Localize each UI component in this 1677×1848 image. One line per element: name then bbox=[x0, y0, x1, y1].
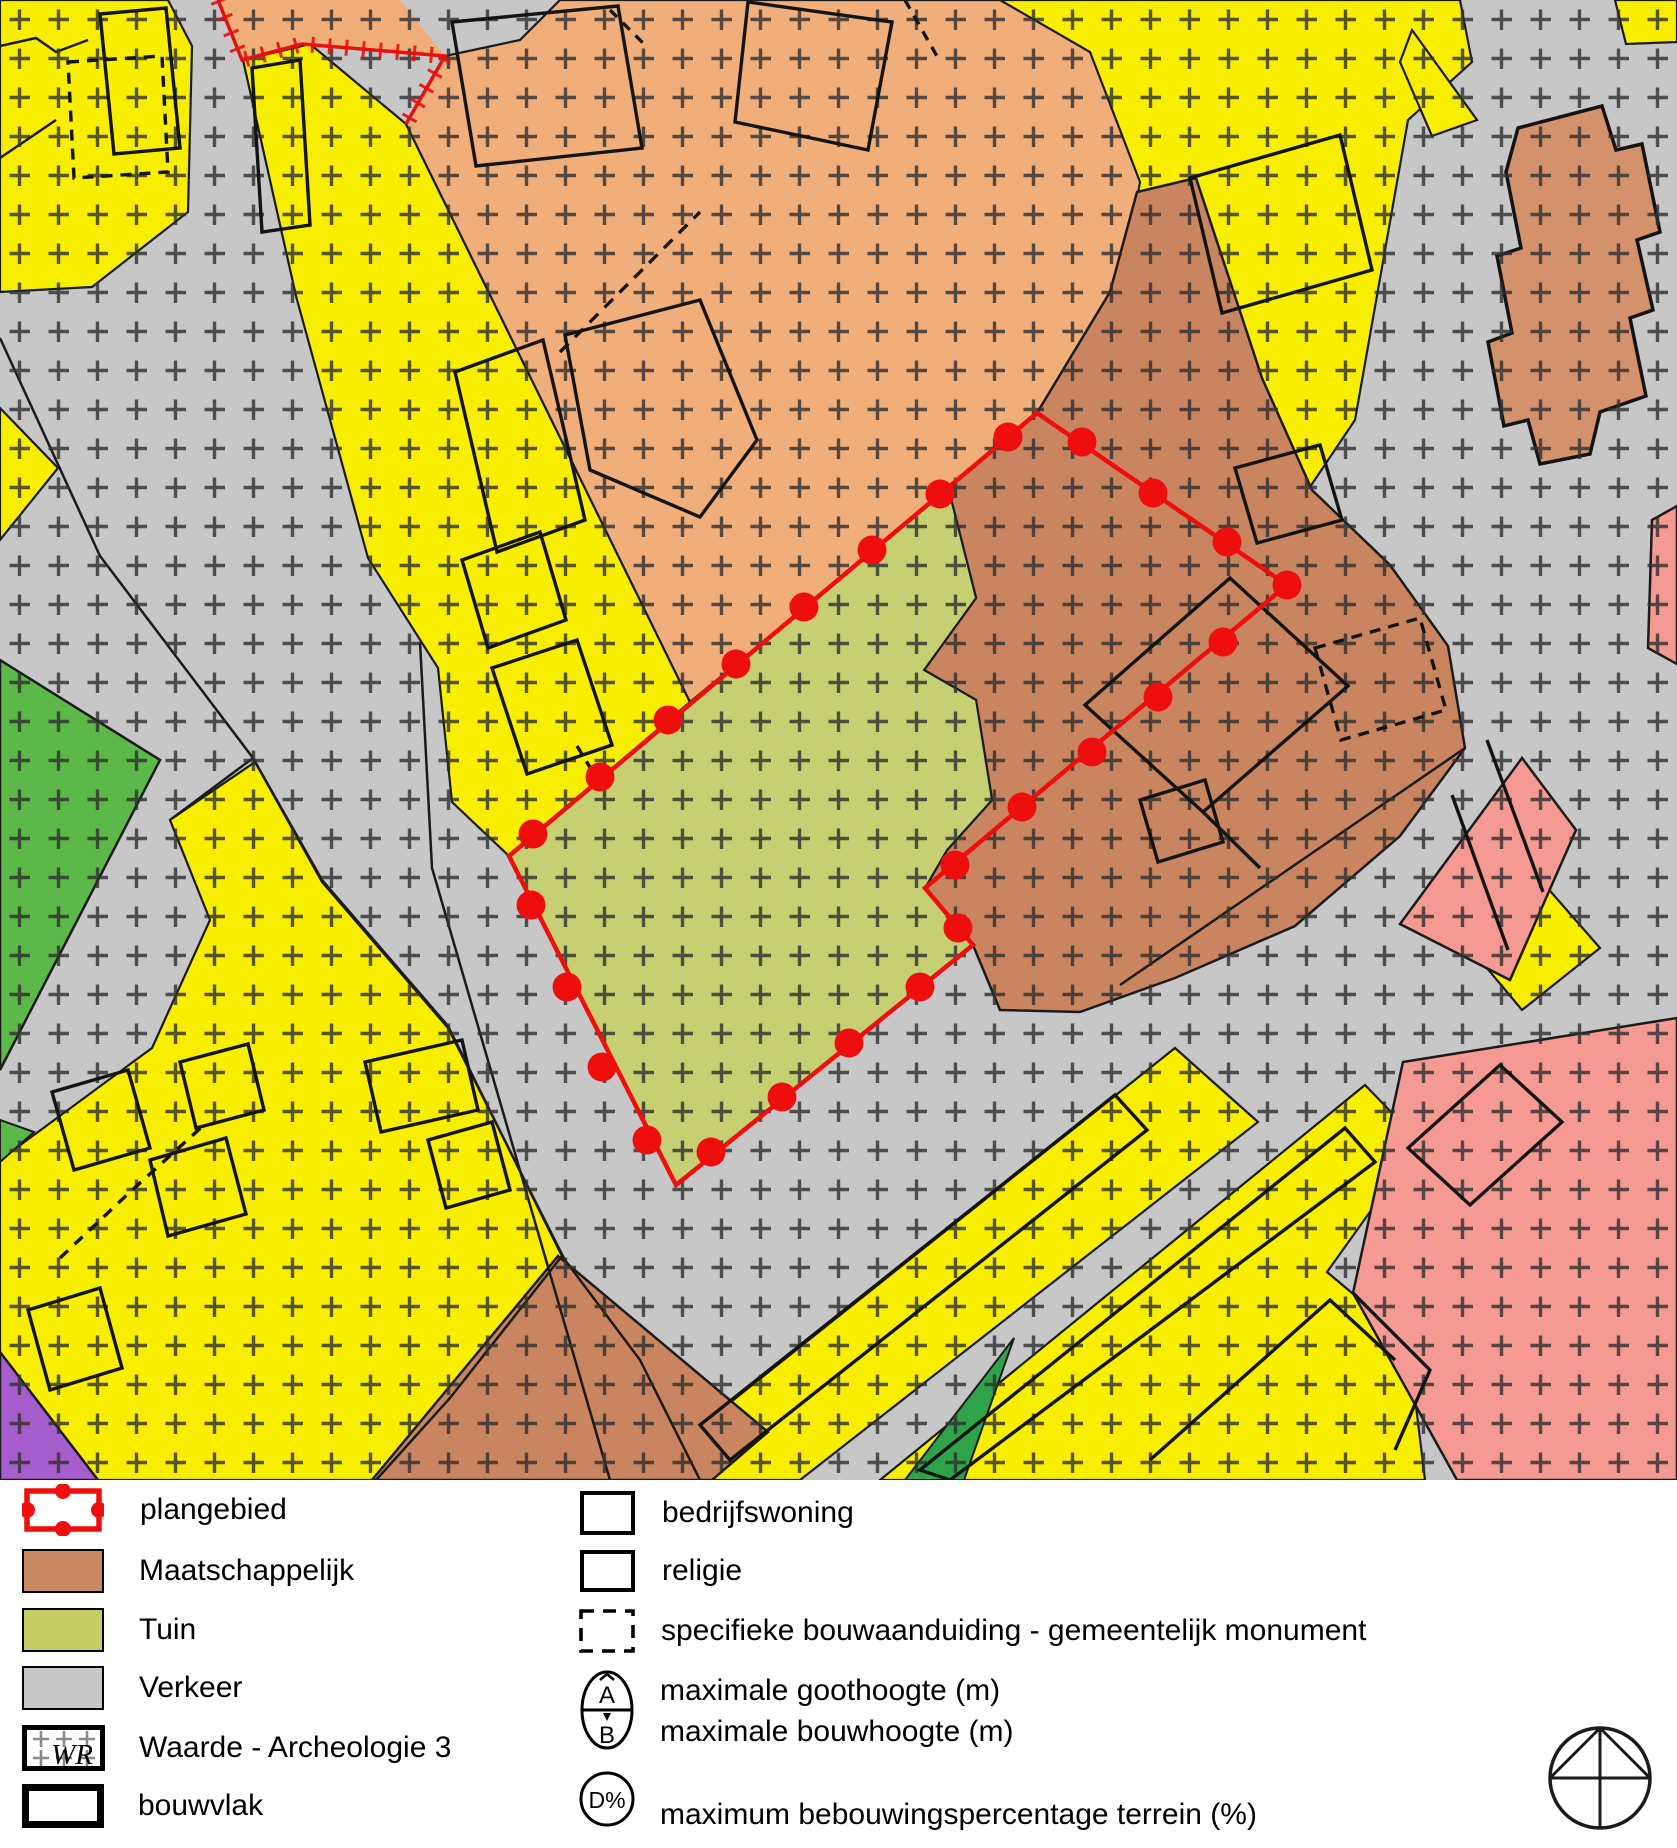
plangebied-vertex-dot bbox=[519, 820, 548, 849]
plangebied-vertex-dot bbox=[588, 1053, 617, 1082]
plangebied-vertex-dot bbox=[790, 593, 819, 622]
plangebied-vertex-dot bbox=[654, 706, 683, 735]
plangebied-vertex-dot bbox=[944, 914, 973, 943]
legend-row-verkeer: Verkeer bbox=[22, 1666, 242, 1710]
legend-row-gemeentelijk-monument: specifieke bouwaanduiding - gemeentelijk… bbox=[578, 1608, 1366, 1654]
waarde-archeologie-pattern bbox=[0, 0, 1677, 1480]
north-arrow-compass-icon bbox=[1544, 1722, 1656, 1834]
plangebied-vertex-dot bbox=[858, 536, 887, 565]
legend-label-waarde-archeologie: Waarde - Archeologie 3 bbox=[139, 1732, 451, 1764]
plangebied-vertex-dot bbox=[633, 1126, 662, 1155]
legend-label-gemeentelijk-monument: specifieke bouwaanduiding - gemeentelijk… bbox=[661, 1615, 1366, 1647]
waarde-archeologie-symbol-icon: WR bbox=[22, 1725, 105, 1771]
map-canvas bbox=[0, 0, 1677, 1480]
legend: plangebied Maatschappelijk Tuin Verkeer bbox=[0, 1480, 1677, 1848]
plangebied-vertex-dot bbox=[517, 891, 546, 920]
legend-row-plangebied: plangebied bbox=[22, 1485, 287, 1535]
plangebied-vertex-dot bbox=[926, 480, 955, 509]
legend-label-religie: religie bbox=[662, 1555, 742, 1587]
plangebied-vertex-dot bbox=[941, 851, 970, 880]
bebouwingspercentage-icon: D% bbox=[578, 1770, 636, 1828]
legend-label-bouwvlak: bouwvlak bbox=[138, 1790, 263, 1822]
plangebied-vertex-dot bbox=[1209, 628, 1238, 657]
plangebied-vertex-dot bbox=[1078, 738, 1107, 767]
plangebied-vertex-dot bbox=[1068, 428, 1097, 457]
legend-label-bebouwingspercentage: maximum bebouwingspercentage terrein (%) bbox=[660, 1798, 1257, 1832]
legend-label-goothoogte: maximale goothoogte (m) bbox=[660, 1674, 1000, 1708]
plangebied-vertex-dot bbox=[1273, 571, 1302, 600]
maatschappelijk-swatch bbox=[22, 1549, 104, 1593]
plangebied-vertex-dot bbox=[906, 973, 935, 1002]
bedrijfswoning-symbol bbox=[580, 1491, 635, 1535]
legend-row-tuin: Tuin bbox=[22, 1608, 196, 1652]
plangebied-vertex-dot bbox=[1213, 528, 1242, 557]
plangebied-vertex-dot bbox=[768, 1083, 797, 1112]
legend-row-religie: religie bbox=[580, 1549, 742, 1593]
plangebied-vertex-dot bbox=[1144, 683, 1173, 712]
legend-row-bouwvlak: bouwvlak bbox=[22, 1783, 263, 1829]
legend-label-bedrijfswoning: bedrijfswoning bbox=[662, 1497, 854, 1529]
plangebied-vertex-dot bbox=[553, 973, 582, 1002]
tuin-swatch bbox=[22, 1608, 104, 1652]
bouwvlak-swatch bbox=[22, 1784, 104, 1828]
svg-text:A: A bbox=[599, 1682, 615, 1709]
verkeer-swatch bbox=[22, 1666, 104, 1710]
legend-label-plangebied: plangebied bbox=[140, 1494, 287, 1526]
plangebied-symbol-icon bbox=[22, 1484, 104, 1536]
plangebied-vertex-dot bbox=[994, 423, 1023, 452]
legend-row-waarde-archeologie: WR Waarde - Archeologie 3 bbox=[22, 1725, 451, 1771]
plangebied-vertex-dot bbox=[1008, 793, 1037, 822]
dashed-rect-icon bbox=[578, 1608, 638, 1654]
plangebied-vertex-dot bbox=[1139, 479, 1168, 508]
religie-symbol bbox=[580, 1550, 635, 1592]
plangebied-vertex-dot bbox=[586, 763, 615, 792]
legend-label-maatschappelijk: Maatschappelijk bbox=[139, 1555, 354, 1587]
plangebied-vertex-dot bbox=[835, 1029, 864, 1058]
plangebied-vertex-dot bbox=[697, 1138, 726, 1167]
legend-label-bouwhoogte: maximale bouwhoogte (m) bbox=[660, 1715, 1013, 1749]
svg-text:D%: D% bbox=[588, 1787, 625, 1813]
plangebied-vertex-dot bbox=[722, 650, 751, 679]
svg-text:B: B bbox=[599, 1722, 615, 1749]
svg-text:WR: WR bbox=[51, 1739, 93, 1771]
goothoogte-bouwhoogte-icon: A B bbox=[578, 1669, 638, 1751]
legend-row-bedrijfswoning: bedrijfswoning bbox=[580, 1490, 854, 1536]
legend-label-tuin: Tuin bbox=[139, 1614, 196, 1646]
zoning-map-screenshot: plangebied Maatschappelijk Tuin Verkeer bbox=[0, 0, 1677, 1848]
legend-label-verkeer: Verkeer bbox=[139, 1672, 242, 1704]
legend-row-maatschappelijk: Maatschappelijk bbox=[22, 1549, 354, 1593]
